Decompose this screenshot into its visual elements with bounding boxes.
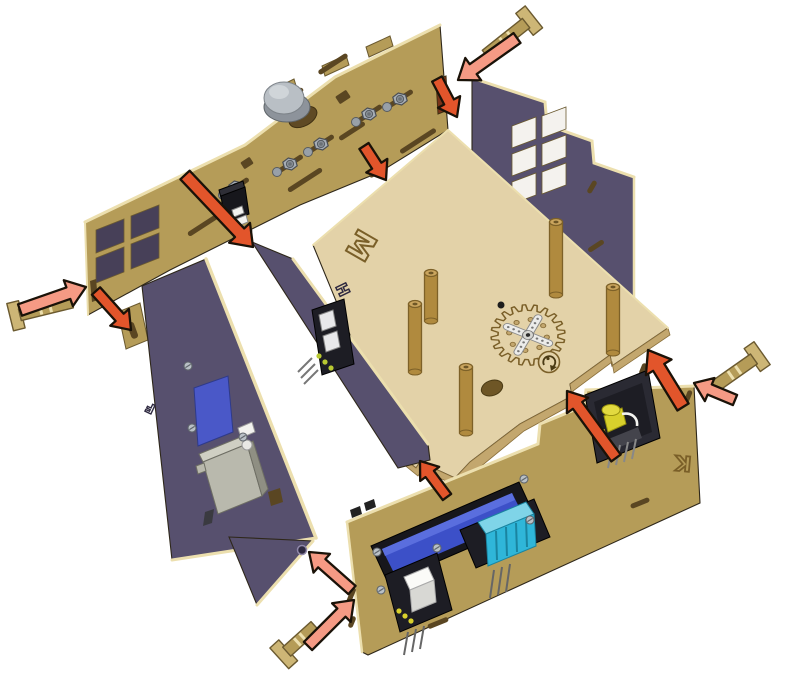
screw xyxy=(373,548,381,556)
module-pins xyxy=(298,358,318,384)
assembly-arrow-pink xyxy=(458,33,521,80)
bolt-tip xyxy=(383,103,392,112)
dowel-hole xyxy=(412,303,417,306)
screw xyxy=(184,362,192,370)
left-panel: F xyxy=(142,259,316,560)
standoff xyxy=(364,499,376,511)
dowel-body xyxy=(425,273,438,321)
wood-dowel-peg xyxy=(460,364,473,437)
gear-screw xyxy=(498,302,505,309)
gear-hole xyxy=(513,320,519,325)
corner-panel xyxy=(229,537,313,605)
bolt-tip xyxy=(304,148,313,157)
screw xyxy=(526,516,534,524)
screw xyxy=(188,424,196,432)
exploded-assembly-diagram: M H xyxy=(0,0,786,677)
nut-center xyxy=(288,162,292,166)
dowel-bottom xyxy=(409,369,422,375)
wood-dowel-peg xyxy=(425,270,438,325)
dowel-body xyxy=(409,304,422,372)
nut-center xyxy=(398,97,402,101)
potentiometer-knob xyxy=(264,82,310,122)
screw xyxy=(239,433,247,441)
gear-hole xyxy=(536,345,542,350)
dowel-body xyxy=(460,367,473,433)
cam-disc xyxy=(539,352,560,373)
wood-dowel-peg xyxy=(607,284,620,357)
wood-dowel-peg xyxy=(409,301,422,376)
front-panel-label: K xyxy=(674,450,693,475)
screw xyxy=(433,544,441,552)
bolt-tip xyxy=(352,118,361,127)
screw-hole xyxy=(298,546,307,555)
assembly-arrow-pink xyxy=(309,552,356,594)
dowel-bottom xyxy=(425,318,438,324)
dowel-bottom xyxy=(607,350,620,356)
dowel-bottom xyxy=(550,292,563,298)
screw xyxy=(377,586,385,594)
gear-hole xyxy=(510,342,516,347)
bolt-tip xyxy=(273,168,282,177)
nut-center xyxy=(319,142,323,146)
nut-center xyxy=(367,112,371,116)
dowel-bottom xyxy=(460,430,473,436)
screw xyxy=(520,475,528,483)
assembly-3d-view: M H xyxy=(0,0,786,677)
gear-hole xyxy=(540,323,546,328)
dowel-hole xyxy=(553,221,558,224)
dowel-body xyxy=(607,287,620,353)
locking-pin xyxy=(711,342,771,392)
wood-dowel-peg xyxy=(550,219,563,299)
dowel-hole xyxy=(463,366,468,369)
dowel-body xyxy=(550,222,563,295)
dowel-hole xyxy=(610,286,615,289)
dowel-hole xyxy=(428,272,433,275)
